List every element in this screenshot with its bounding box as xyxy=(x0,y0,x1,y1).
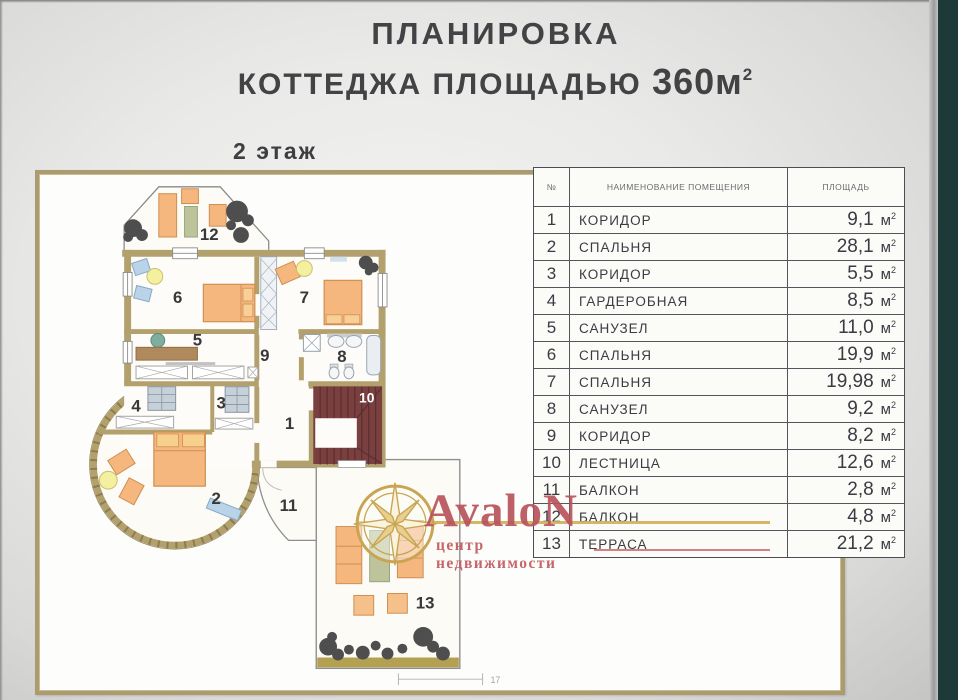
row-name: КОРИДОР xyxy=(570,207,788,233)
unit-sup: 2 xyxy=(891,427,896,437)
logo-red-line xyxy=(594,549,770,551)
area-value: 12,6 xyxy=(837,452,874,474)
right-teal-band xyxy=(938,0,958,700)
table-header-row: № НАИМЕНОВАНИЕ ПОМЕЩЕНИЯ ПЛОЩАДЬ xyxy=(534,168,904,206)
lounger xyxy=(159,194,177,237)
slide-left-edge xyxy=(0,0,3,700)
area-value: 9,1 xyxy=(847,209,873,231)
unit-sup: 2 xyxy=(891,373,896,383)
room-label-3: 3 xyxy=(217,393,226,412)
table-row: 8 САНУЗЕЛ 9,2м2 xyxy=(534,395,904,422)
area-unit: м2 xyxy=(881,211,896,229)
slide-title: ПЛАНИРОВКА КОТТЕДЖА ПЛОЩАДЬЮ 360м2 xyxy=(0,16,958,103)
unit-m: м xyxy=(881,239,891,256)
title-area-sup: 2 xyxy=(743,65,754,84)
table-row: 6 СПАЛЬНЯ 19,9м2 xyxy=(534,341,904,368)
unit-sup: 2 xyxy=(891,535,896,545)
room-label-8: 8 xyxy=(337,347,346,366)
table-row: 4 ГАРДЕРОБНАЯ 8,5м2 xyxy=(534,287,904,314)
rug xyxy=(330,257,347,262)
area-unit: м2 xyxy=(881,535,896,553)
rug xyxy=(185,206,198,237)
wardrobe-strip xyxy=(261,257,277,330)
row-name: КОРИДОР xyxy=(570,423,788,449)
unit-m: м xyxy=(881,374,891,391)
dimension-line xyxy=(398,673,482,685)
room-label-7: 7 xyxy=(300,288,309,307)
unit-sup: 2 xyxy=(891,346,896,356)
title-line2-text: КОТТЕДЖА ПЛОЩАДЬЮ xyxy=(238,68,642,101)
unit-sup: 2 xyxy=(891,265,896,275)
row-area: 8,2м2 xyxy=(788,423,904,449)
unit-sup: 2 xyxy=(891,238,896,248)
row-name: БАЛКОН xyxy=(570,504,788,530)
row-area: 8,5м2 xyxy=(788,288,904,314)
area-value: 4,8 xyxy=(847,506,873,528)
unit-m: м xyxy=(881,320,891,337)
table-row: 13 ТЕРРАСА 21,2м2 xyxy=(534,530,904,557)
title-line1: ПЛАНИРОВКА xyxy=(34,16,958,52)
floor-label: 2 этаж xyxy=(180,138,370,165)
area-unit: м2 xyxy=(881,454,896,472)
room-label-4: 4 xyxy=(131,396,141,415)
room-label-6: 6 xyxy=(173,288,182,307)
title-line2: КОТТЕДЖА ПЛОЩАДЬЮ 360м2 xyxy=(34,61,958,103)
logo-name: AvaloN xyxy=(424,484,578,538)
unit-sup: 2 xyxy=(891,292,896,302)
unit-sup: 2 xyxy=(891,319,896,329)
unit-m: м xyxy=(881,347,891,364)
row-name: СПАЛЬНЯ xyxy=(570,342,788,368)
row-num: 9 xyxy=(534,423,570,449)
row-area: 4,8м2 xyxy=(788,504,904,530)
room-label-11: 11 xyxy=(280,496,298,515)
table-row: 2 СПАЛЬНЯ 28,1м2 xyxy=(534,233,904,260)
right-grey-strip xyxy=(929,0,938,700)
row-name: КОРИДОР xyxy=(570,261,788,287)
unit-m: м xyxy=(881,482,891,499)
balcony-12 xyxy=(123,187,269,253)
unit-m: м xyxy=(881,428,891,445)
slide: { "title": {"line1": "ПЛАНИРОВКА", "line… xyxy=(0,0,958,700)
table-row: 11 БАЛКОН 2,8м2 xyxy=(534,476,904,503)
side-table xyxy=(182,189,199,204)
header-area: ПЛОЩАДЬ xyxy=(788,168,904,206)
unit-sup: 2 xyxy=(891,508,896,518)
row-area: 21,2м2 xyxy=(788,531,904,557)
table-row: 3 КОРИДОР 5,5м2 xyxy=(534,260,904,287)
title-area-value: 360м xyxy=(652,61,743,102)
area-unit: м2 xyxy=(881,400,896,418)
row-area: 28,1м2 xyxy=(788,234,904,260)
area-unit: м2 xyxy=(881,265,896,283)
row-name: БАЛКОН xyxy=(570,477,788,503)
unit-sup: 2 xyxy=(891,400,896,410)
row-area: 19,9м2 xyxy=(788,342,904,368)
area-unit: м2 xyxy=(881,427,896,445)
area-value: 28,1 xyxy=(837,236,874,258)
row-name: ЛЕСТНИЦА xyxy=(570,450,788,476)
row-name: СПАЛЬНЯ xyxy=(570,234,788,260)
unit-m: м xyxy=(881,536,891,553)
area-unit: м2 xyxy=(881,319,896,337)
unit-m: м xyxy=(881,266,891,283)
row-area: 5,5м2 xyxy=(788,261,904,287)
row-num: 1 xyxy=(534,207,570,233)
row-num: 4 xyxy=(534,288,570,314)
area-value: 19,98 xyxy=(826,371,874,393)
row-area: 9,2м2 xyxy=(788,396,904,422)
table-row: 1 КОРИДОР 9,1м2 xyxy=(534,206,904,233)
row-name: ТЕРРАСА xyxy=(570,531,788,557)
row-area: 9,1м2 xyxy=(788,207,904,233)
room-label-1: 1 xyxy=(285,414,294,433)
room-label-5: 5 xyxy=(193,330,202,349)
unit-sup: 2 xyxy=(891,454,896,464)
row-num: 2 xyxy=(534,234,570,260)
row-area: 2,8м2 xyxy=(788,477,904,503)
row-name: САНУЗЕЛ xyxy=(570,396,788,422)
row-num: 8 xyxy=(534,396,570,422)
row-num: 10 xyxy=(534,450,570,476)
area-unit: м2 xyxy=(881,238,896,256)
table-row: 10 ЛЕСТНИЦА 12,6м2 xyxy=(534,449,904,476)
row-num: 5 xyxy=(534,315,570,341)
room-label-12: 12 xyxy=(200,225,219,244)
unit-m: м xyxy=(881,509,891,526)
row-name: СПАЛЬНЯ xyxy=(570,369,788,395)
area-unit: м2 xyxy=(881,292,896,310)
area-value: 8,2 xyxy=(847,425,873,447)
table-row: 9 КОРИДОР 8,2м2 xyxy=(534,422,904,449)
unit-m: м xyxy=(881,401,891,418)
area-unit: м2 xyxy=(881,508,896,526)
rooms-table: № НАИМЕНОВАНИЕ ПОМЕЩЕНИЯ ПЛОЩАДЬ 1 КОРИД… xyxy=(533,167,905,558)
area-value: 9,2 xyxy=(847,398,873,420)
table-row: 7 СПАЛЬНЯ 19,98м2 xyxy=(534,368,904,395)
table-row: 12 БАЛКОН 4,8м2 xyxy=(534,503,904,530)
chair xyxy=(209,205,226,227)
logo-tagline: центр недвижимости xyxy=(436,537,556,573)
area-value: 5,5 xyxy=(847,263,873,285)
unit-m: м xyxy=(881,293,891,310)
row-num: 6 xyxy=(534,342,570,368)
table-row: 5 САНУЗЕЛ 11,0м2 xyxy=(534,314,904,341)
area-unit: м2 xyxy=(881,346,896,364)
row-area: 19,98м2 xyxy=(788,369,904,395)
header-num: № xyxy=(534,168,570,206)
room-label-10: 10 xyxy=(359,390,375,406)
unit-sup: 2 xyxy=(891,211,896,221)
row-area: 11,0м2 xyxy=(788,315,904,341)
room-label-13: 13 xyxy=(416,593,435,612)
area-value: 2,8 xyxy=(847,479,873,501)
area-unit: м2 xyxy=(881,373,896,391)
room-label-2: 2 xyxy=(212,489,221,508)
row-name: ГАРДЕРОБНАЯ xyxy=(570,288,788,314)
header-name: НАИМЕНОВАНИЕ ПОМЕЩЕНИЯ xyxy=(570,168,788,206)
row-num: 3 xyxy=(534,261,570,287)
dimension-label: 17 xyxy=(490,675,500,685)
area-unit: м2 xyxy=(881,481,896,499)
area-value: 8,5 xyxy=(847,290,873,312)
unit-m: м xyxy=(881,455,891,472)
area-value: 21,2 xyxy=(837,533,874,555)
row-num: 7 xyxy=(534,369,570,395)
unit-m: м xyxy=(881,212,891,229)
row-area: 12,6м2 xyxy=(788,450,904,476)
room-label-9: 9 xyxy=(260,346,269,365)
area-value: 19,9 xyxy=(837,344,874,366)
row-name: САНУЗЕЛ xyxy=(570,315,788,341)
unit-sup: 2 xyxy=(891,481,896,491)
area-value: 11,0 xyxy=(838,317,874,339)
slide-top-edge xyxy=(0,0,958,3)
